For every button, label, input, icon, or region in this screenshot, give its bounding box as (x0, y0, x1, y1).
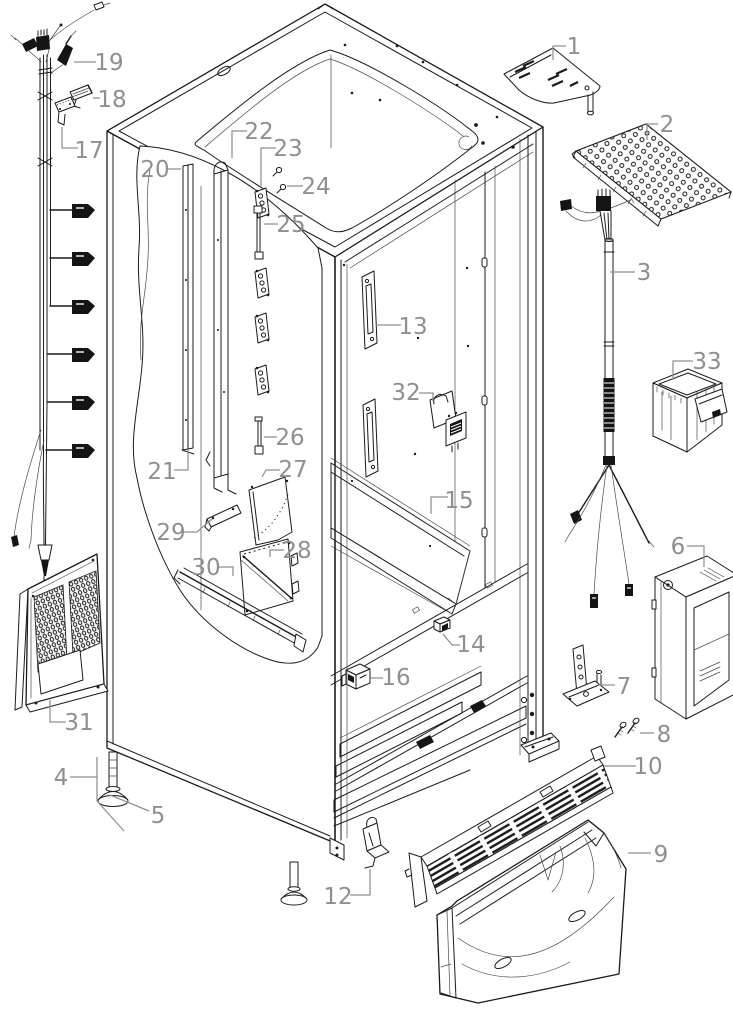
part-27-bracket-plate (249, 477, 292, 545)
part-callout-15: 15 (444, 488, 473, 514)
part-12-bracket (363, 817, 389, 868)
part-4-5-leveling-foot (98, 752, 128, 807)
part-callout-8: 8 (657, 722, 672, 748)
part-callout-32: 32 (391, 380, 420, 406)
part-callout-33: 33 (692, 349, 721, 375)
right-front-pillar (520, 127, 559, 762)
part-callout-3: 3 (637, 260, 652, 286)
part-3-wire-conduit (560, 189, 654, 608)
part-14-clip (434, 617, 450, 632)
part-20-21-mounting-rail (182, 164, 194, 454)
part-17-clip (55, 97, 75, 125)
part-31-vent-panel (15, 554, 108, 712)
part-callout-23: 23 (273, 136, 302, 162)
part-callout-14: 14 (456, 632, 485, 658)
part-callout-26: 26 (275, 425, 304, 451)
part-6-cover-housing (652, 556, 733, 719)
part-callout-29: 29 (156, 520, 185, 546)
part-callout-1: 1 (567, 34, 582, 60)
part-32-control-bracket (430, 391, 466, 452)
part-callout-20: 20 (140, 157, 169, 183)
part-callout-10: 10 (633, 754, 662, 780)
part-callout-6: 6 (671, 534, 686, 560)
part-callout-21: 21 (147, 459, 176, 485)
part-callout-28: 28 (282, 538, 311, 564)
part-callout-2: 2 (660, 112, 675, 138)
part-callout-13: 13 (398, 314, 427, 340)
part-callout-17: 17 (74, 138, 103, 164)
callout-leader-12 (350, 869, 370, 895)
part-19-wire-harness (11, 2, 110, 583)
part-callout-5: 5 (151, 803, 166, 829)
part-callout-27: 27 (278, 457, 307, 483)
part-callout-7: 7 (617, 674, 632, 700)
part-13-rail-brackets (362, 271, 378, 477)
part-callout-12: 12 (323, 884, 352, 910)
part-callout-16: 16 (381, 665, 410, 691)
interior-floor-deck (331, 564, 527, 826)
part-15-shelf (331, 458, 470, 614)
part-7-bracket (563, 645, 609, 706)
front-corner-leveling-foot (281, 862, 307, 905)
part-callout-24: 24 (301, 174, 330, 200)
part-callout-31: 31 (64, 710, 93, 736)
part-1-bracket-plate (504, 48, 600, 115)
part-callout-9: 9 (654, 842, 669, 868)
part-callout-18: 18 (97, 87, 126, 113)
part-33-container (653, 369, 727, 452)
harness-branch-connectors (46, 204, 95, 458)
part-8-screws (615, 717, 640, 737)
part-callout-4: 4 (54, 765, 69, 791)
part-callout-25: 25 (276, 212, 305, 238)
part-callout-19: 19 (94, 50, 123, 76)
part-2-perforated-grille (572, 124, 731, 226)
part-callout-22: 22 (244, 119, 273, 145)
part-callout-30: 30 (191, 555, 220, 581)
parts-diagram-page: 1234567891012131415161718192021222324252… (0, 0, 733, 1009)
exploded-parts-diagram: 1234567891012131415161718192021222324252… (0, 0, 733, 1009)
